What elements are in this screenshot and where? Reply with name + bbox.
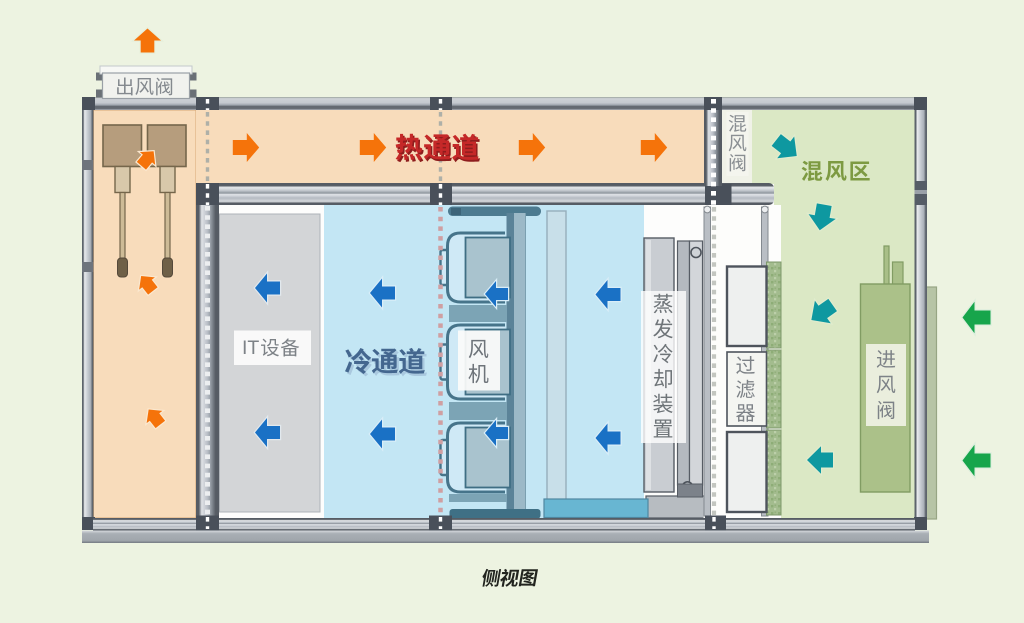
svg-text:IT: IT bbox=[242, 337, 259, 359]
